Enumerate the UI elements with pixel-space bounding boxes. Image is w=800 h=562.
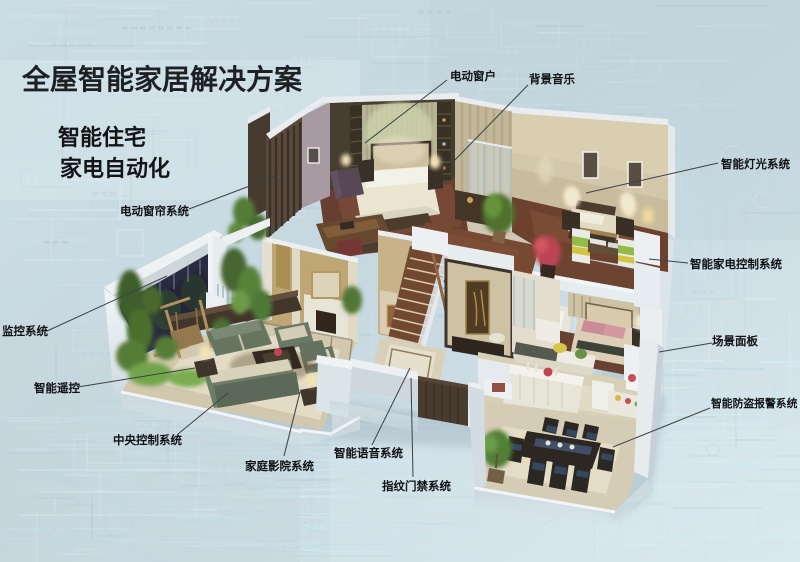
svg-text:全屋智能家居解决方案: 全屋智能家居解决方案 — [21, 63, 303, 95]
svg-text:智能灯光系统: 智能灯光系统 — [721, 157, 790, 171]
svg-text:智能防盗报警系统: 智能防盗报警系统 — [711, 396, 798, 410]
svg-text:家庭影院系统: 家庭影院系统 — [245, 459, 314, 473]
svg-text:指纹门禁系统: 指纹门禁系统 — [382, 479, 451, 493]
svg-text:智能遥控: 智能遥控 — [34, 381, 80, 395]
svg-text:智能语音系统: 智能语音系统 — [334, 446, 403, 460]
svg-text:电动窗户: 电动窗户 — [450, 69, 496, 83]
svg-text:电动窗帘系统: 电动窗帘系统 — [120, 204, 189, 218]
svg-text:背景音乐: 背景音乐 — [529, 72, 575, 86]
svg-text:智能家电控制系统: 智能家电控制系统 — [690, 257, 782, 271]
svg-text:场景面板: 场景面板 — [712, 334, 758, 348]
svg-text:中央控制系统: 中央控制系统 — [113, 433, 182, 447]
svg-text:智能住宅: 智能住宅 — [58, 125, 146, 150]
svg-text:监控系统: 监控系统 — [2, 324, 48, 338]
svg-text:家电自动化: 家电自动化 — [60, 156, 170, 181]
